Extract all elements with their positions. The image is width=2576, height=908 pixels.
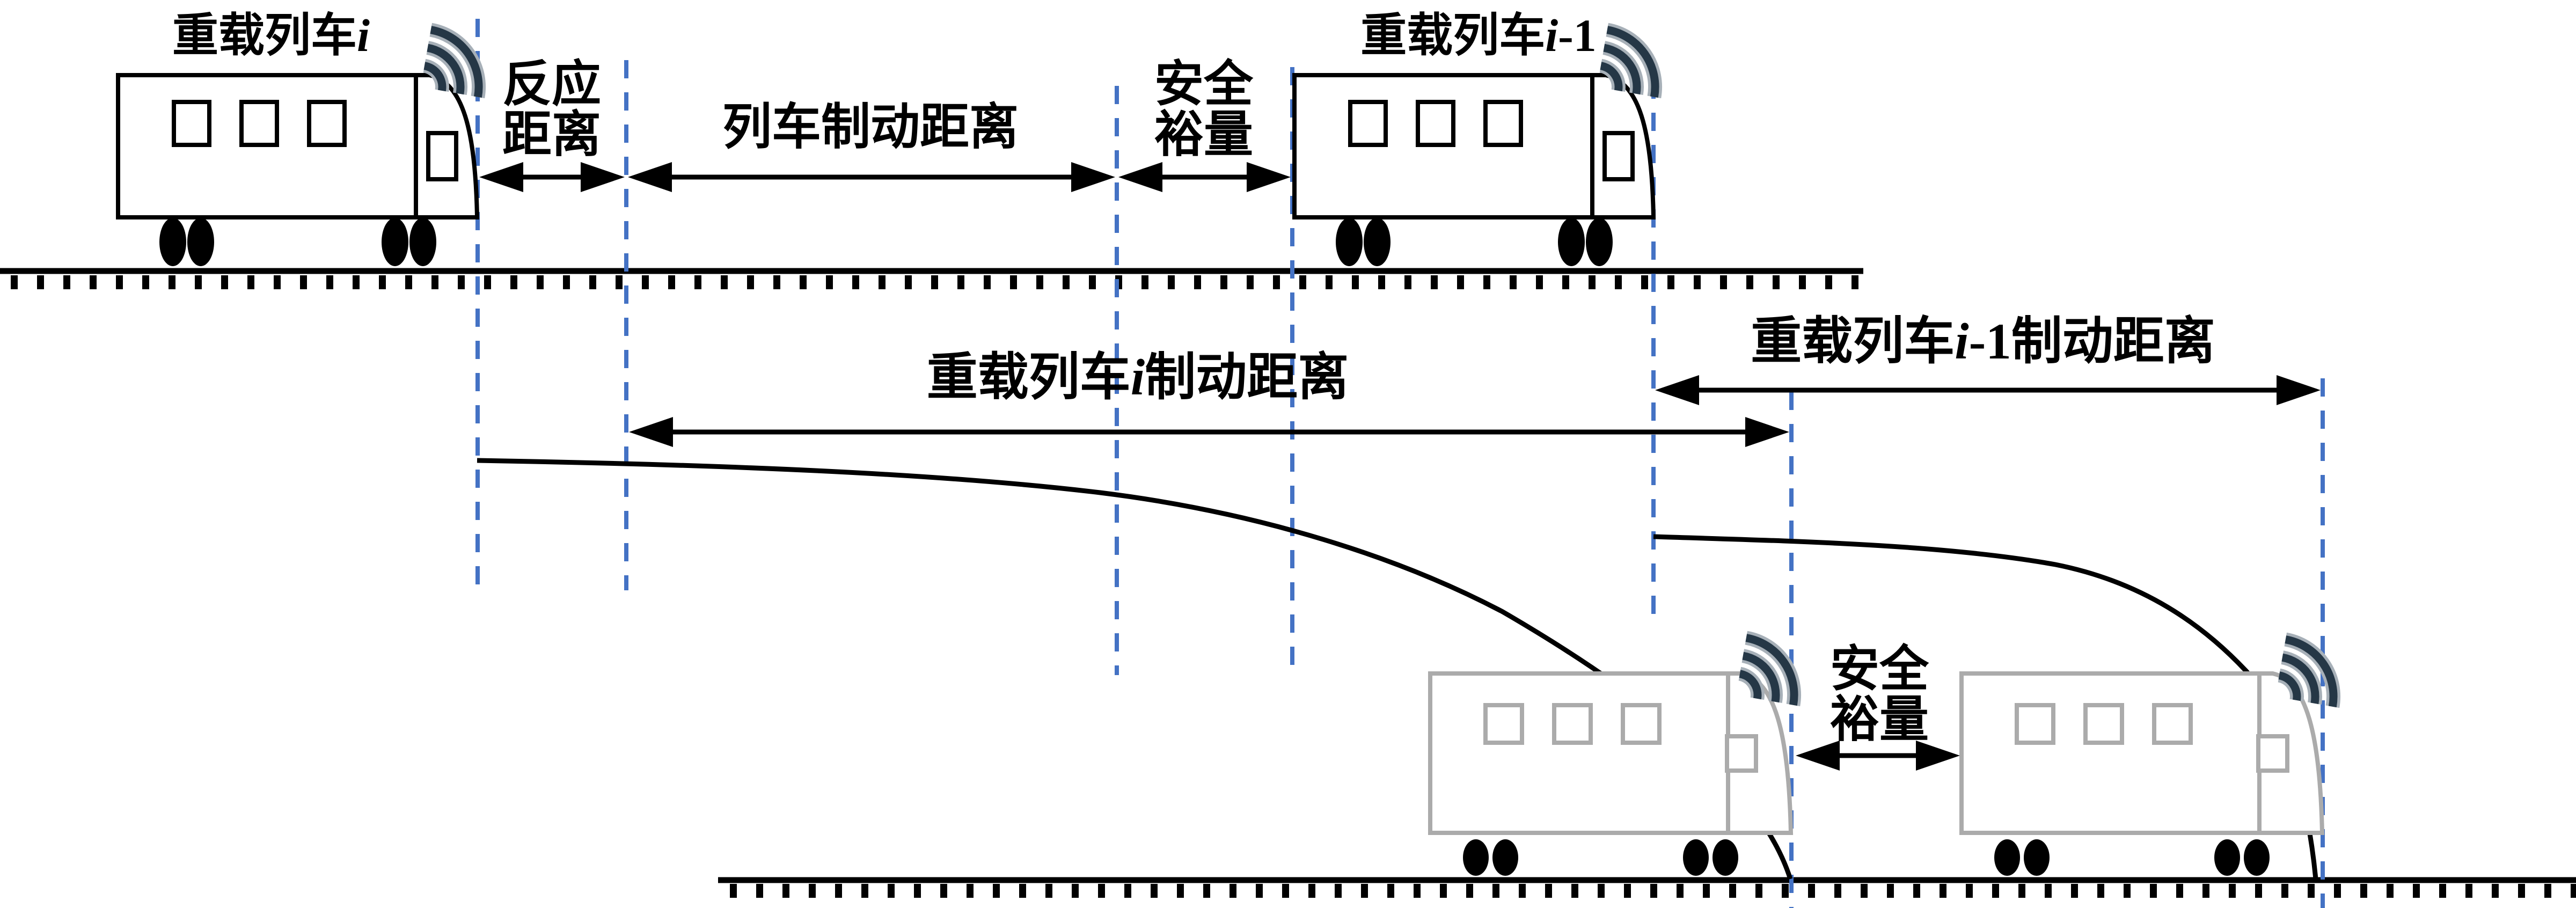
train-braking-distance-label: 列车制动距离 xyxy=(722,100,1019,155)
train-i-braking-distance-label: 重载列车i制动距离 xyxy=(927,349,1349,406)
arrowhead-left xyxy=(629,417,673,447)
train-i1-braking-distance-label: 重载列车i-1制动距离 xyxy=(1751,313,2215,370)
top-track xyxy=(0,271,1863,282)
safety-margin-arrow-top xyxy=(1118,162,1291,192)
train-i xyxy=(118,30,479,266)
safety-margin-bottom-line2: 裕量 xyxy=(1830,692,1929,747)
reaction-distance-line2: 距离 xyxy=(502,107,601,162)
arrowhead-right xyxy=(1247,162,1291,192)
arrowhead-left xyxy=(628,162,672,192)
train-i-minus-1 xyxy=(1294,30,1655,266)
bottom-track xyxy=(718,880,2576,891)
arrowhead-right xyxy=(1745,417,1789,447)
arrowhead-right xyxy=(581,162,625,192)
reaction-distance-line1: 反应 xyxy=(502,57,601,112)
ghost-train-i-minus-1 xyxy=(1962,640,2333,876)
reaction-distance-arrow xyxy=(479,162,625,192)
ghost-train-i1-shape xyxy=(1962,673,2322,876)
arrowhead-right xyxy=(2277,375,2321,405)
braking-distance-diagram: 重载列车i 重载列车i-1 反应 距离 列车制动距离 安全 裕量 重载列车i制动… xyxy=(0,0,2576,908)
train-i1-label: 重载列车i-1 xyxy=(1360,10,1597,61)
train-i-braking-arrow xyxy=(629,417,1789,447)
arrowhead-left xyxy=(1118,162,1162,192)
safety-margin-top-line2: 裕量 xyxy=(1154,107,1253,162)
ghost-train-i xyxy=(1430,638,1794,876)
reaction-distance-label: 反应 距离 xyxy=(502,57,601,162)
arrowhead-right xyxy=(1071,162,1115,192)
safety-margin-top-line1: 安全 xyxy=(1154,57,1254,112)
train-i-label: 重载列车i xyxy=(172,10,370,61)
train-i1-braking-arrow xyxy=(1655,375,2321,405)
arrowhead-left xyxy=(1655,375,1699,405)
safety-margin-label-top: 安全 裕量 xyxy=(1154,57,1254,162)
braking-distance-arrow xyxy=(628,162,1115,192)
train-i1-shape xyxy=(1294,75,1653,266)
safety-margin-label-bottom: 安全 裕量 xyxy=(1830,642,1929,747)
safety-margin-bottom-line1: 安全 xyxy=(1830,642,1929,697)
arrowhead-left xyxy=(479,162,523,192)
ghost-train-i-shape xyxy=(1430,673,1791,876)
train-i-shape xyxy=(118,75,477,266)
page: { "colors": { "background": "#ffffff", "… xyxy=(0,0,2576,908)
